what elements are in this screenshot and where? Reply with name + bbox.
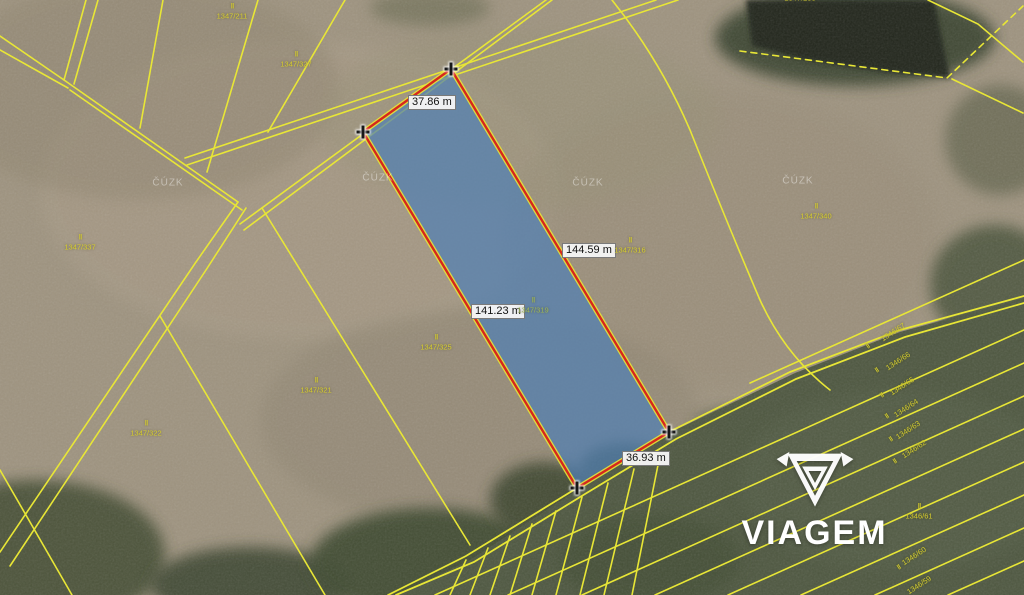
parcel-number: 1347/337 <box>64 244 95 252</box>
vertex-marker-south[interactable] <box>571 482 584 495</box>
cuzk-watermark: ČÚZK <box>572 178 603 189</box>
vertex-marker-north[interactable] <box>445 63 458 76</box>
parcel-number: 1347/327 <box>280 61 311 69</box>
parcel-label: ‖ 1347/321 <box>300 378 331 395</box>
parcel-label: ‖ 1347/325 <box>420 335 451 352</box>
measurement-label: 144.59 m <box>562 243 616 258</box>
cuzk-watermark: ČÚZK <box>152 178 183 189</box>
land-use-symbol: ‖ <box>64 235 95 243</box>
viagem-logo-text: VIAGEM <box>722 516 907 550</box>
measurement-label: 36.93 m <box>622 451 670 466</box>
parcel-label: ‖ 1347/327 <box>280 52 311 69</box>
land-use-symbol: ‖ <box>130 421 161 429</box>
vertex-marker-east[interactable] <box>663 426 676 439</box>
measurement-label: 37.86 m <box>408 95 456 110</box>
parcel-number: 1347/319 <box>517 307 548 315</box>
land-use-symbol: ‖ <box>517 298 548 306</box>
viagem-logo: VIAGEM <box>722 450 907 550</box>
cuzk-watermark: ČÚZK <box>362 173 393 184</box>
parcel-number: 1347/211 <box>217 13 248 21</box>
map-canvas[interactable]: 37.86 m 144.59 m 141.23 m 36.93 m ‖ 1347… <box>0 0 1024 595</box>
cuzk-watermark: ČÚZK <box>782 176 813 187</box>
parcel-label: ‖ 1347/322 <box>130 421 161 438</box>
parcel-label-selected: ‖ 1347/319 <box>517 298 548 315</box>
parcel-number: 1347/322 <box>130 430 161 438</box>
parcel-number: 1347/288 <box>784 0 815 3</box>
land-use-symbol: ‖ <box>420 335 451 343</box>
parcel-number: 1347/321 <box>300 387 331 395</box>
parcel-number: 1347/325 <box>420 344 451 352</box>
parcel-number: 1347/316 <box>614 247 645 255</box>
parcel-number: 1347/340 <box>800 213 831 221</box>
land-use-symbol: ‖ <box>614 238 645 246</box>
land-use-symbol: ‖ <box>905 504 932 512</box>
parcel-label: ‖ 1347/288 <box>784 0 815 3</box>
viagem-logo-icon <box>767 450 863 514</box>
parcel-label: ‖ 1347/340 <box>800 204 831 221</box>
parcel-label: ‖ 1347/211 <box>217 4 248 21</box>
vertex-marker-west[interactable] <box>357 126 370 139</box>
parcel-label: ‖ 1346/61 <box>905 504 932 521</box>
parcel-number: 1346/61 <box>905 513 932 521</box>
parcel-label: ‖ 1347/337 <box>64 235 95 252</box>
parcel-label: ‖ 1347/316 <box>614 238 645 255</box>
land-use-symbol: ‖ <box>217 4 248 12</box>
land-use-symbol: ‖ <box>300 378 331 386</box>
land-use-symbol: ‖ <box>800 204 831 212</box>
land-use-symbol: ‖ <box>280 52 311 60</box>
